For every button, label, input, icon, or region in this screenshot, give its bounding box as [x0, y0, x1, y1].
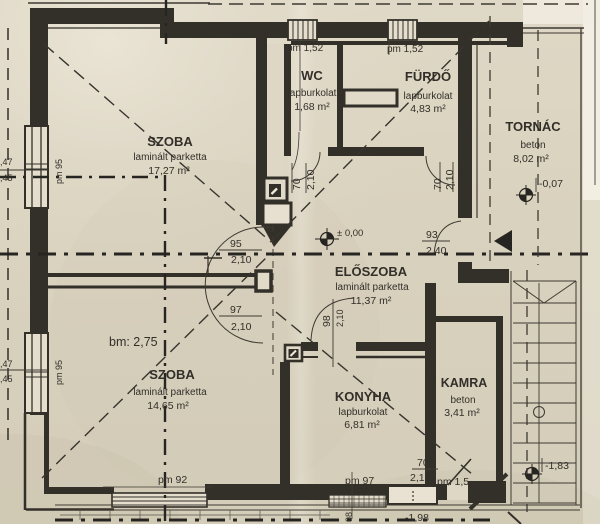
svg-text:WC: WC	[301, 68, 323, 83]
svg-text:beton: beton	[450, 395, 475, 406]
svg-text:2,10: 2,10	[231, 254, 252, 266]
svg-text:bm: 2,75: bm: 2,75	[109, 335, 158, 349]
svg-text:2,10: 2,10	[410, 472, 431, 484]
svg-text:,45: ,45	[0, 173, 13, 183]
svg-text:ELŐSZOBA: ELŐSZOBA	[335, 264, 408, 279]
svg-text:SZOBA: SZOBA	[147, 134, 193, 149]
svg-text:6,81 m²: 6,81 m²	[344, 419, 380, 431]
svg-text:pm 92: pm 92	[158, 474, 187, 486]
svg-text:laminált parketta: laminált parketta	[335, 282, 409, 293]
svg-text:2,10: 2,10	[444, 169, 456, 190]
svg-text:,47: ,47	[0, 359, 13, 369]
svg-text:lapburkolat: lapburkolat	[339, 407, 388, 418]
svg-text:3,41 m²: 3,41 m²	[444, 407, 480, 419]
svg-text:11,37 m²: 11,37 m²	[351, 295, 392, 307]
svg-text:1,68 m²: 1,68 m²	[294, 101, 330, 113]
svg-text:97: 97	[230, 304, 242, 316]
svg-text:,47: ,47	[0, 157, 13, 167]
svg-text:98: 98	[344, 512, 354, 522]
svg-text:pm 1,52: pm 1,52	[287, 43, 324, 54]
svg-text:2,10: 2,10	[305, 169, 317, 190]
svg-text:pm 1,5: pm 1,5	[437, 476, 469, 488]
svg-text:laminált parketta: laminált parketta	[133, 387, 207, 398]
svg-text:SZOBA: SZOBA	[149, 367, 195, 382]
svg-text:98: 98	[321, 315, 333, 327]
svg-text:14,65 m²: 14,65 m²	[147, 400, 189, 412]
svg-text:2,10: 2,10	[335, 309, 345, 327]
svg-text:8,02 m²: 8,02 m²	[513, 153, 549, 165]
svg-text:KONYHA: KONYHA	[335, 389, 392, 404]
svg-text:beton: beton	[520, 140, 545, 151]
svg-text:KAMRA: KAMRA	[441, 376, 488, 390]
svg-text:pm 95: pm 95	[54, 159, 64, 184]
svg-text:-0,07: -0,07	[539, 178, 563, 190]
svg-text:-1,83: -1,83	[545, 460, 569, 472]
svg-text:pm 95: pm 95	[54, 360, 64, 385]
svg-text:95: 95	[230, 238, 242, 250]
svg-text:2,10: 2,10	[231, 321, 252, 333]
svg-text:TORNÁC: TORNÁC	[505, 119, 561, 134]
svg-text:laminált parketta: laminált parketta	[133, 152, 207, 163]
svg-text:lapburkolat: lapburkolat	[404, 91, 453, 102]
svg-text:FÜRDŐ: FÜRDŐ	[405, 69, 451, 84]
svg-text:,45: ,45	[0, 374, 13, 384]
svg-text:lapburkolat: lapburkolat	[288, 88, 337, 99]
svg-text:70: 70	[417, 457, 429, 469]
svg-text:-1,98: -1,98	[405, 512, 429, 524]
svg-text:2,40: 2,40	[426, 245, 447, 257]
svg-text:± 0,00: ± 0,00	[337, 228, 363, 239]
svg-text:93: 93	[426, 229, 438, 241]
svg-text:4,83 m²: 4,83 m²	[410, 103, 446, 115]
svg-text:pm 97: pm 97	[345, 475, 374, 487]
svg-text:17,27 m²: 17,27 m²	[148, 165, 190, 177]
svg-text:70: 70	[432, 178, 444, 190]
svg-text:pm 1,52: pm 1,52	[387, 44, 424, 55]
svg-text:70: 70	[291, 178, 303, 190]
